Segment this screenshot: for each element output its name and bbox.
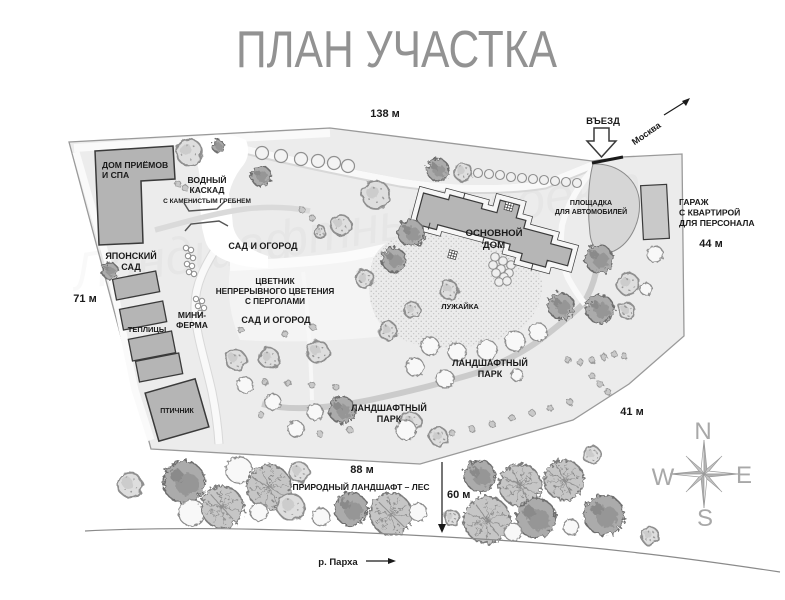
svg-text:ПАРК: ПАРК <box>478 369 503 379</box>
svg-text:И СПА: И СПА <box>102 170 129 180</box>
svg-text:НЕПРЕРЫВНОГО ЦВЕТЕНИЯ: НЕПРЕРЫВНОГО ЦВЕТЕНИЯ <box>216 287 335 296</box>
svg-text:S: S <box>697 505 713 532</box>
svg-text:ДОМ ПРИЁМОВ: ДОМ ПРИЁМОВ <box>102 160 168 170</box>
svg-text:ПАРК: ПАРК <box>377 414 402 424</box>
svg-text:р. Парха: р. Парха <box>318 557 358 568</box>
svg-text:С КВАРТИРОЙ: С КВАРТИРОЙ <box>679 207 740 218</box>
svg-text:44 м: 44 м <box>699 238 722 250</box>
svg-text:ЯПОНСКИЙ: ЯПОНСКИЙ <box>105 250 156 261</box>
svg-text:W: W <box>652 464 675 491</box>
svg-text:E: E <box>736 462 752 489</box>
svg-text:71 м: 71 м <box>73 293 96 305</box>
svg-text:ПЛОЩАДКА: ПЛОЩАДКА <box>570 200 612 207</box>
svg-text:ЦВЕТНИК: ЦВЕТНИК <box>255 277 295 286</box>
svg-text:ДЛЯ ПЕРСОНАЛА: ДЛЯ ПЕРСОНАЛА <box>679 218 755 228</box>
svg-text:МИНИ-: МИНИ- <box>178 310 206 320</box>
svg-text:ЛАНДШАФТНЫЙ: ЛАНДШАФТНЫЙ <box>452 357 528 368</box>
svg-text:ВЪЕЗД: ВЪЕЗД <box>586 116 620 127</box>
svg-text:САД: САД <box>121 262 141 272</box>
svg-text:ГАРАЖ: ГАРАЖ <box>679 197 709 207</box>
svg-text:САД И ОГОРОД: САД И ОГОРОД <box>241 315 311 325</box>
svg-text:88 м: 88 м <box>350 464 373 476</box>
svg-text:С ПЕРГОЛАМИ: С ПЕРГОЛАМИ <box>245 297 305 306</box>
svg-text:ПЛАН УЧАСТКА: ПЛАН УЧАСТКА <box>236 21 557 79</box>
svg-text:ВОДНЫЙ: ВОДНЫЙ <box>187 174 226 185</box>
svg-text:ЛУЖАЙКА: ЛУЖАЙКА <box>441 302 479 311</box>
svg-text:60 м: 60 м <box>447 489 470 501</box>
svg-text:САД И ОГОРОД: САД И ОГОРОД <box>228 241 298 251</box>
svg-text:41 м: 41 м <box>620 406 643 418</box>
svg-text:ПТИЧНИК: ПТИЧНИК <box>160 408 194 415</box>
svg-text:138 м: 138 м <box>370 108 400 120</box>
svg-text:N: N <box>694 418 711 445</box>
svg-text:КАСКАД: КАСКАД <box>190 185 225 195</box>
svg-text:ПРИРОДНЫЙ ЛАНДШАФТ – ЛЕС: ПРИРОДНЫЙ ЛАНДШАФТ – ЛЕС <box>292 481 429 492</box>
svg-text:ОСНОВНОЙ: ОСНОВНОЙ <box>466 227 523 239</box>
svg-text:ДОМ: ДОМ <box>483 240 505 251</box>
svg-text:ДЛЯ АВТОМОБИЛЕЙ: ДЛЯ АВТОМОБИЛЕЙ <box>555 207 627 216</box>
svg-text:ТЕПЛИЦЫ: ТЕПЛИЦЫ <box>128 325 166 334</box>
svg-text:С КАМЕНИСТЫМ ГРЕБНЕМ: С КАМЕНИСТЫМ ГРЕБНЕМ <box>163 198 251 205</box>
svg-text:ФЕРМА: ФЕРМА <box>176 320 208 330</box>
svg-text:ЛАНДШАФТНЫЙ: ЛАНДШАФТНЫЙ <box>351 402 427 413</box>
